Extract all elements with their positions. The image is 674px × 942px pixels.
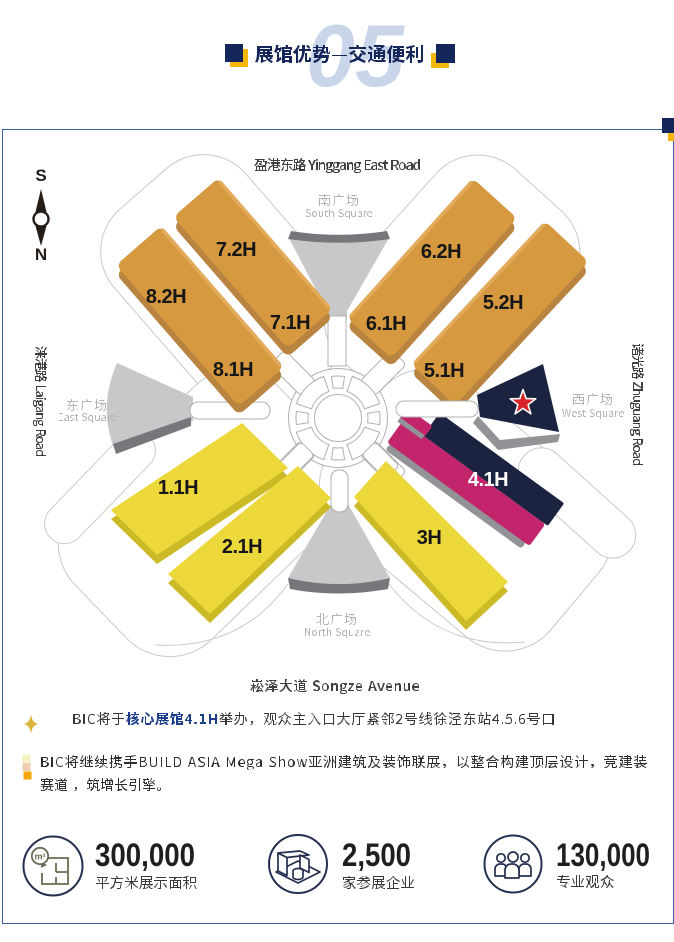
svg-text:7.1H: 7.1H <box>270 312 310 334</box>
svg-text:5.2H: 5.2H <box>483 292 523 314</box>
svg-text:8.2H: 8.2H <box>146 286 186 308</box>
svg-text:2,500: 2,500 <box>342 837 411 873</box>
svg-text:130,000: 130,000 <box>556 837 650 873</box>
svg-text:5.1H: 5.1H <box>424 360 464 382</box>
svg-text:m²: m² <box>35 852 46 862</box>
svg-text:300,000: 300,000 <box>95 837 195 873</box>
svg-text:8.1H: 8.1H <box>213 359 253 381</box>
svg-text:S: S <box>35 166 46 185</box>
svg-text:2.1H: 2.1H <box>222 536 262 558</box>
svg-text:1.1H: 1.1H <box>158 477 198 499</box>
svg-text:7.2H: 7.2H <box>216 239 256 261</box>
svg-text:N: N <box>35 245 47 264</box>
svg-text:6.1H: 6.1H <box>366 313 406 335</box>
svg-text:4.1H: 4.1H <box>468 469 508 491</box>
svg-text:6.2H: 6.2H <box>421 241 461 263</box>
svg-text:3H: 3H <box>417 527 442 549</box>
